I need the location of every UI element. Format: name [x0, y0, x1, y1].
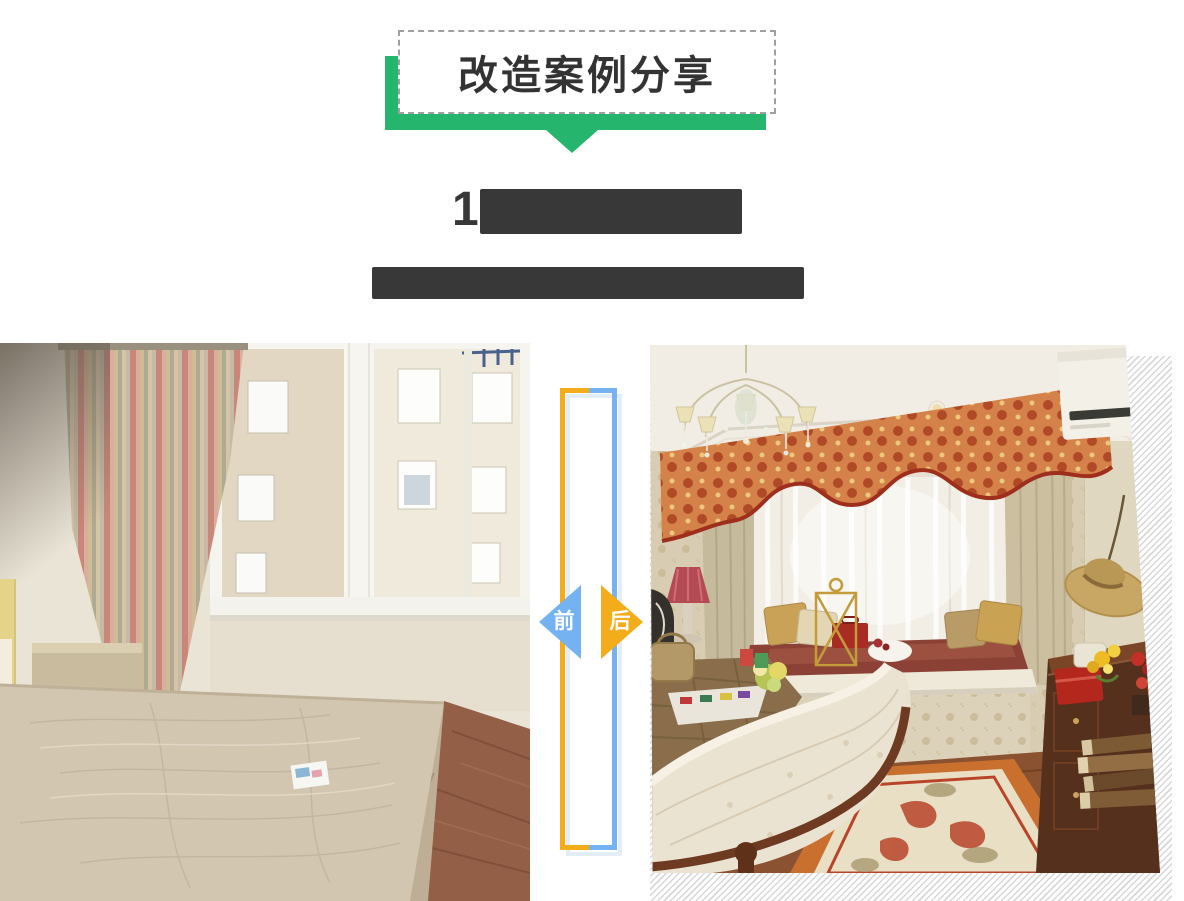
- divider-top-blue: [589, 388, 617, 393]
- before-label: 前: [550, 609, 578, 635]
- headline: 1: [452, 186, 742, 234]
- divider-top-orange: [560, 388, 589, 393]
- after-photo: [650, 345, 1160, 873]
- headline-visible-prefix: 1: [452, 186, 479, 234]
- headline-redacted-bar: [480, 189, 742, 234]
- before-photo-illustration: [0, 343, 530, 901]
- ribbon-tail-triangle: [546, 130, 598, 153]
- divider-bottom-orange: [560, 845, 589, 850]
- ribbon-bottom-bar: [385, 113, 766, 130]
- subheadline-redacted-bar: [372, 267, 804, 299]
- before-photo: [0, 343, 530, 901]
- banner-title: 改造案例分享: [458, 43, 716, 101]
- divider-bottom-blue: [589, 845, 617, 850]
- after-label: 后: [606, 609, 634, 635]
- promo-page: 改造案例分享 1: [0, 0, 1184, 901]
- banner-dashed-box: 改造案例分享: [398, 30, 776, 114]
- after-photo-illustration: [650, 345, 1160, 873]
